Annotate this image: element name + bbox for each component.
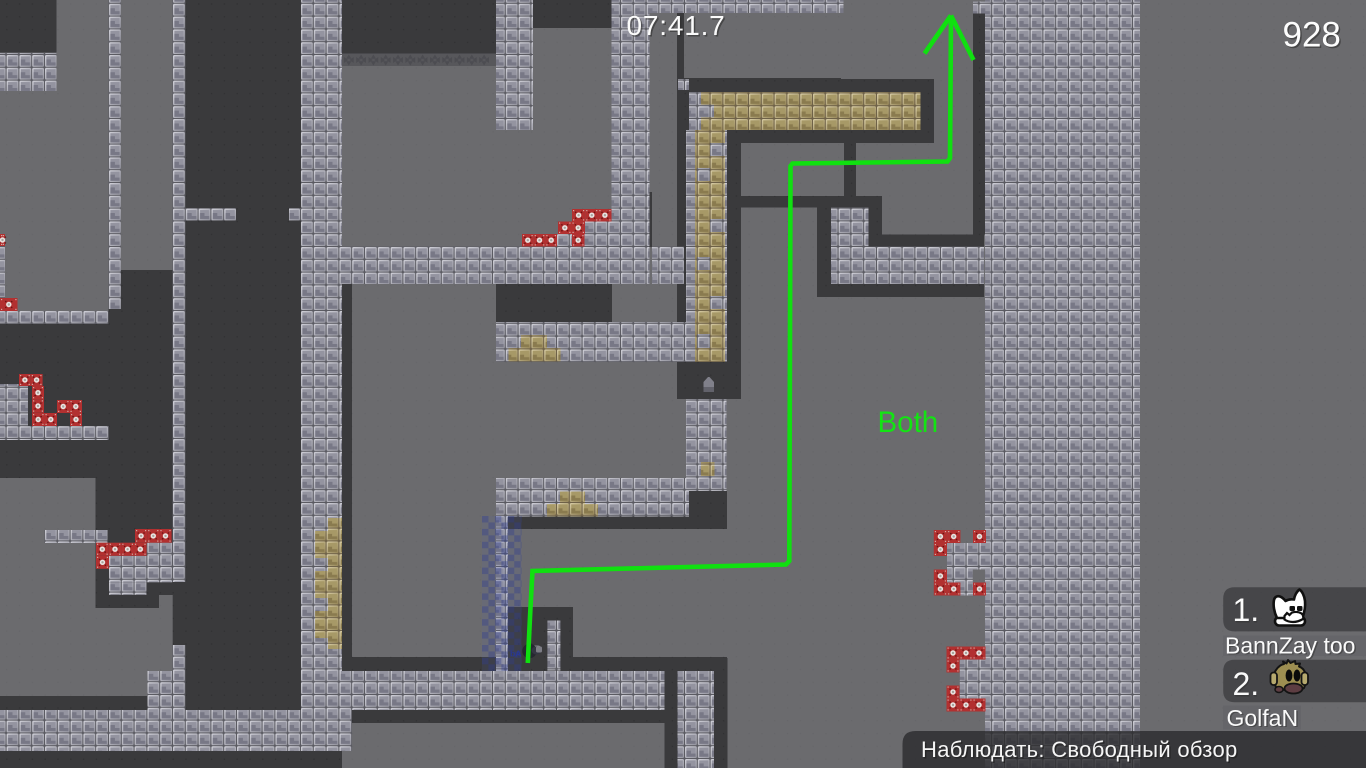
svg-text:2.: 2.: [1233, 666, 1260, 702]
svg-text:bA: bA: [510, 649, 521, 659]
svg-text:Both: Both: [878, 406, 939, 439]
svg-text:Наблюдать: Свободный обзор: Наблюдать: Свободный обзор: [921, 737, 1238, 762]
svg-text:GolfaN: GolfaN: [1227, 705, 1299, 731]
svg-text:BannZay too: BannZay too: [1225, 633, 1355, 659]
svg-text:1.: 1.: [1233, 592, 1260, 628]
svg-text:07:41.7: 07:41.7: [627, 10, 726, 41]
svg-text:928: 928: [1283, 16, 1341, 55]
